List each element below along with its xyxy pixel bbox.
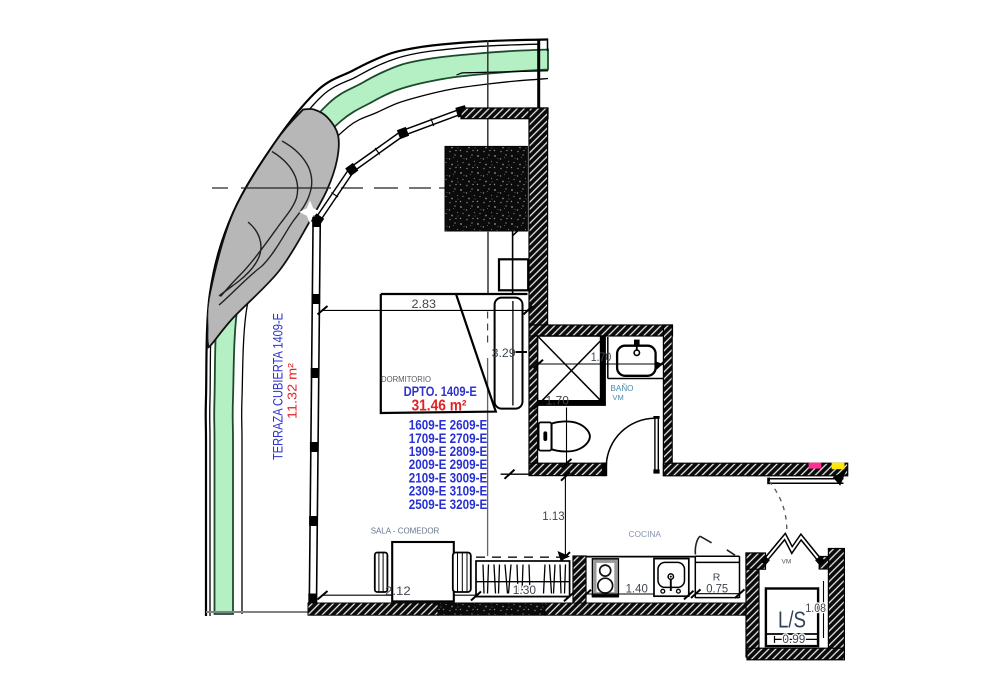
svg-text:DPTO. 1409-E: DPTO. 1409-E [404,384,477,399]
svg-text:11.32 m²: 11.32 m² [285,362,300,419]
svg-text:1.40: 1.40 [626,583,648,595]
svg-text:1.30: 1.30 [513,585,536,597]
svg-text:TERRAZA CUBIERTA 1409-E: TERRAZA CUBIERTA 1409-E [270,313,286,460]
svg-text:DORMITORIO: DORMITORIO [381,374,431,384]
svg-text:1.70: 1.70 [546,396,569,408]
svg-text:1.70: 1.70 [591,352,612,364]
svg-text:2.12: 2.12 [385,586,411,598]
svg-text:1.13: 1.13 [542,511,564,523]
svg-text:31.46 m²: 31.46 m² [412,398,467,415]
svg-text:BAÑO: BAÑO [611,384,634,393]
svg-text:SALA - COMEDOR: SALA - COMEDOR [371,526,440,535]
svg-text:VM: VM [613,393,624,402]
svg-text:2509-E 3209-E: 2509-E 3209-E [409,497,488,512]
svg-text:0.99: 0.99 [782,634,805,646]
svg-text:0.75: 0.75 [706,583,728,595]
svg-text:2.83: 2.83 [412,299,437,311]
svg-text:COCINA: COCINA [629,529,662,539]
svg-text:3.29: 3.29 [492,348,516,360]
svg-text:VM: VM [782,558,792,565]
svg-text:L/S: L/S [778,607,806,633]
svg-text:1.08: 1.08 [805,603,826,615]
svg-text:R: R [713,571,721,583]
